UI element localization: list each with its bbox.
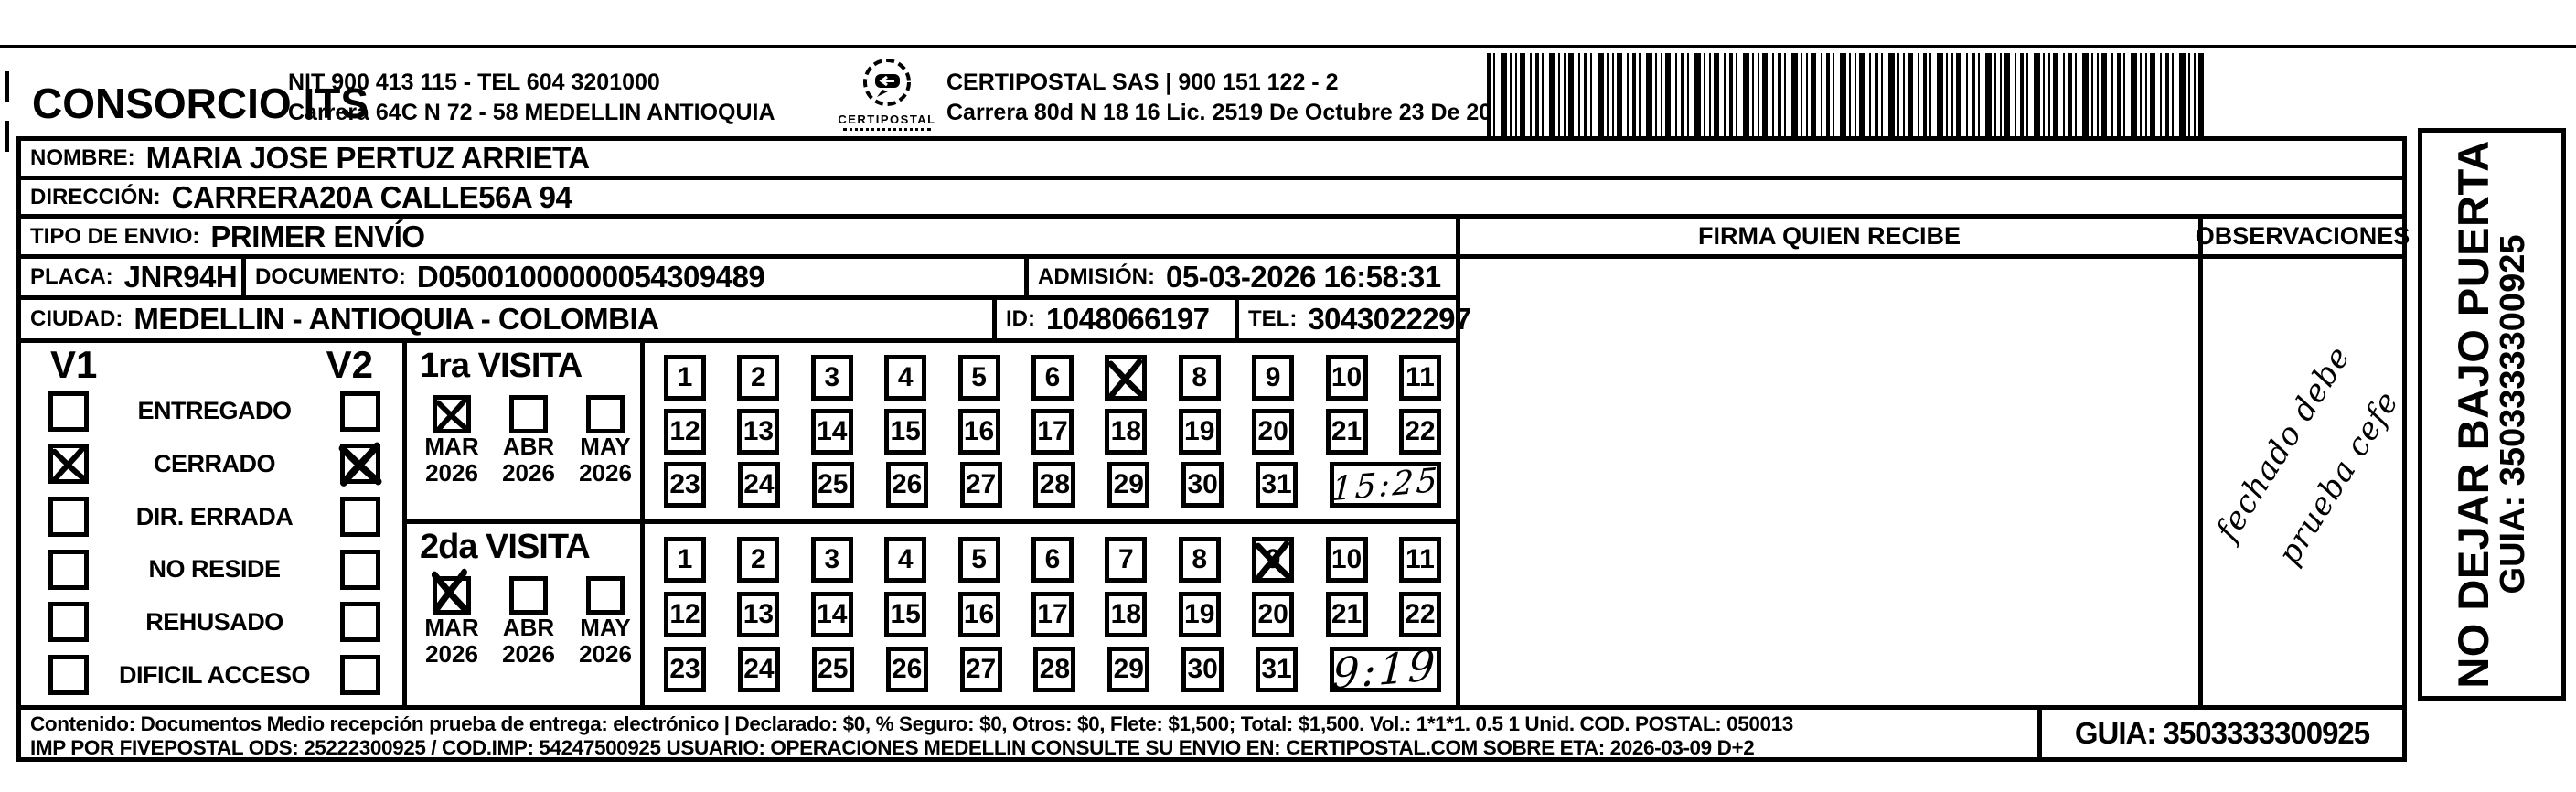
day-13[interactable]: 13: [737, 409, 779, 455]
day-number: 17: [1037, 416, 1067, 447]
visit-months: 2da VISITAMAR2026ABR2026MAY2026: [407, 524, 645, 705]
ciudad-value: MEDELLIN - ANTIOQUIA - COLOMBIA: [134, 302, 658, 337]
day-5[interactable]: 5: [958, 537, 1000, 583]
v1-checkbox-1[interactable]: [48, 444, 89, 484]
month-option-abr: ABR2026: [497, 395, 561, 487]
month-label: MAR: [424, 433, 478, 460]
day-number: 30: [1187, 654, 1217, 685]
handwritten-x-mark: [335, 438, 386, 489]
day-14[interactable]: 14: [811, 592, 853, 637]
logo-wordmark: CERTIPOSTAL: [830, 112, 944, 126]
status-label: REHUSADO: [89, 608, 340, 637]
day-19[interactable]: 19: [1179, 409, 1221, 455]
day-number: 2: [751, 362, 766, 393]
day-20[interactable]: 20: [1252, 592, 1294, 637]
day-number: 23: [669, 654, 700, 685]
day-22[interactable]: 22: [1399, 592, 1441, 637]
day-number: 28: [1040, 469, 1070, 500]
v1-checkbox-4[interactable]: [48, 602, 89, 642]
month-year: 2026: [579, 641, 632, 668]
day-3[interactable]: 3: [811, 537, 853, 583]
form-table: NOMBRE: MARIA JOSE PERTUZ ARRIETA DIRECC…: [16, 136, 2407, 762]
day-23[interactable]: 23: [664, 647, 706, 692]
day-25[interactable]: 25: [812, 647, 854, 692]
footer-contenido-line: Contenido: Documentos Medio recepción pr…: [30, 712, 2037, 736]
day-19[interactable]: 19: [1179, 592, 1221, 637]
direccion-row: DIRECCIÓN: CARRERA20A CALLE56A 94: [21, 180, 2402, 219]
id-value: 1048066197: [1046, 302, 1210, 337]
day-row: 1213141516171819202122: [664, 409, 1441, 455]
tipo-envio-row: TIPO DE ENVIO: PRIMER ENVÍO: [21, 219, 1460, 259]
day-number: 19: [1184, 416, 1214, 447]
tipo-envio-label: TIPO DE ENVIO:: [30, 224, 199, 250]
v1-checkbox-3[interactable]: [48, 550, 89, 590]
admision-value: 05-03-2026 16:58:31: [1166, 260, 1441, 294]
nombre-row: NOMBRE: MARIA JOSE PERTUZ ARRIETA: [21, 141, 2402, 180]
v1-column-header: V1: [50, 343, 97, 387]
day-10[interactable]: 10: [1326, 537, 1368, 583]
rotated-sidebar-text: NO DEJAR BAJO PUERTA GUIA: 3503333300925: [2423, 133, 2560, 696]
day-number: 4: [898, 544, 914, 575]
delivery-status-panel: V1 V2 ENTREGADOCERRADODIR. ERRADANO RESI…: [21, 343, 407, 705]
day-number: 9: [1266, 362, 1281, 393]
rotated-sidebar: NO DEJAR BAJO PUERTA GUIA: 3503333300925: [2418, 128, 2566, 701]
visit-title: 1ra VISITA: [407, 343, 640, 386]
day-number: 25: [818, 654, 848, 685]
day-row: 1234567891011: [664, 537, 1441, 583]
v2-checkbox-0[interactable]: [340, 391, 380, 432]
day-22[interactable]: 22: [1399, 409, 1441, 455]
day-number: 15: [890, 599, 920, 630]
day-number: 20: [1257, 599, 1288, 630]
documento-cell: DOCUMENTO: D05001000000054309489: [246, 259, 1029, 300]
visit-title: 2da VISITA: [407, 524, 640, 567]
day-number: 27: [966, 469, 996, 500]
day-number: 15: [890, 416, 920, 447]
day-12[interactable]: 12: [664, 409, 706, 455]
id-cell: ID: 1048066197: [997, 300, 1239, 343]
day-number: 10: [1331, 362, 1362, 393]
footer-guia-cell: GUIA: 3503333300925: [2042, 705, 2402, 757]
day-number: 11: [1406, 362, 1435, 393]
day-10[interactable]: 10: [1326, 355, 1368, 401]
day-number: 8: [1192, 544, 1207, 575]
month-checkbox-abr[interactable]: [509, 576, 548, 615]
tel-cell: TEL: 3043022297: [1239, 300, 1460, 343]
day-18[interactable]: 18: [1105, 409, 1147, 455]
day-number: 24: [743, 654, 774, 685]
id-label: ID:: [1006, 306, 1035, 332]
day-number: 22: [1405, 599, 1435, 630]
day-16[interactable]: 16: [958, 592, 1000, 637]
day-23[interactable]: 23: [664, 462, 706, 508]
day-number: 14: [817, 599, 847, 630]
direccion-label: DIRECCIÓN:: [30, 185, 161, 210]
observaciones-header: OBSERVACIONES: [2203, 219, 2402, 259]
day-number: 2: [751, 544, 766, 575]
status-label: CERRADO: [89, 450, 340, 478]
month-year: 2026: [425, 641, 478, 668]
visit-day-grid: 1234567891011121314151617181920212223242…: [649, 343, 1456, 519]
month-year: 2026: [502, 641, 555, 668]
day-number: 23: [669, 469, 700, 500]
month-label: ABR: [503, 615, 554, 641]
day-2[interactable]: 2: [737, 355, 779, 401]
status-label: ENTREGADO: [89, 397, 340, 425]
day-number: 31: [1261, 654, 1291, 685]
ciudad-cell: CIUDAD: MEDELLIN - ANTIOQUIA - COLOMBIA: [21, 300, 997, 343]
certipostal-contact-block: CERTIPOSTAL SAS | 900 151 122 - 2 Carrer…: [946, 68, 1517, 128]
visit-day-grid: 1234567891011121314151617181920212223242…: [649, 524, 1456, 705]
day-4[interactable]: 4: [884, 355, 926, 401]
month-checkboxes: MAR2026ABR2026MAY2026: [407, 576, 640, 668]
company-nit-line: NIT 900 413 115 - TEL 604 3201000: [288, 68, 775, 98]
nombre-label: NOMBRE:: [30, 145, 135, 171]
day-number: 13: [743, 416, 774, 447]
day-number: 5: [971, 362, 987, 393]
day-number: 12: [669, 599, 700, 630]
v1-checkbox-5[interactable]: [48, 655, 89, 695]
admision-cell: ADMISIÓN: 05-03-2026 16:58:31: [1029, 259, 1460, 300]
visit-panel-1: 1ra VISITAMAR2026ABR2026MAY2026123456789…: [407, 343, 1456, 524]
day-28[interactable]: 28: [1033, 462, 1075, 508]
day-27[interactable]: 27: [960, 462, 1002, 508]
v2-column-header: V2: [326, 343, 373, 387]
day-number: 3: [824, 544, 839, 575]
month-year: 2026: [502, 460, 555, 487]
day-18[interactable]: 18: [1105, 592, 1147, 637]
day-27[interactable]: 27: [960, 647, 1002, 692]
day-14[interactable]: 14: [811, 409, 853, 455]
visit-months: 1ra VISITAMAR2026ABR2026MAY2026: [407, 343, 645, 519]
placa-cell: PLACA: JNR94H: [21, 259, 246, 300]
status-row: NO RESIDE: [21, 550, 402, 590]
day-5[interactable]: 5: [958, 355, 1000, 401]
day-20[interactable]: 20: [1252, 409, 1294, 455]
day-2[interactable]: 2: [737, 537, 779, 583]
day-11[interactable]: 11: [1399, 537, 1441, 583]
firma-signature-area[interactable]: [1460, 263, 2198, 705]
day-number: 26: [892, 654, 922, 685]
day-number: 1: [678, 362, 693, 393]
placa-value: JNR94H: [124, 260, 238, 294]
day-1[interactable]: 1: [664, 537, 706, 583]
day-number: 3: [824, 362, 839, 393]
firma-header: FIRMA QUIEN RECIBE: [1460, 219, 2198, 259]
day-15[interactable]: 15: [884, 409, 926, 455]
month-label: MAY: [580, 615, 630, 641]
no-dejar-bajo-puerta-warning: NO DEJAR BAJO PUERTA: [2452, 140, 2496, 688]
day-number: 26: [892, 469, 922, 500]
status-row: REHUSADO: [21, 602, 402, 642]
handwritten-time: 9:19: [1331, 640, 1439, 700]
v2-checkbox-1[interactable]: [340, 444, 380, 484]
month-checkbox-may[interactable]: [586, 395, 625, 433]
certipostal-sas-line: CERTIPOSTAL SAS | 900 151 122 - 2: [946, 68, 1517, 98]
month-label: MAR: [424, 615, 478, 641]
day-number: 27: [966, 654, 996, 685]
day-number: 14: [817, 416, 847, 447]
tel-value: 3043022297: [1308, 302, 1471, 337]
day-number: 30: [1187, 469, 1217, 500]
scan-artifact: [5, 71, 9, 102]
day-number: 8: [1192, 362, 1207, 393]
day-24[interactable]: 24: [738, 647, 780, 692]
footer-content-cell: Contenido: Documentos Medio recepción pr…: [21, 705, 2042, 757]
day-number: 24: [743, 469, 774, 500]
day-row: 23242526272829303115:25: [664, 462, 1441, 508]
status-row: DIFICIL ACCESO: [21, 655, 402, 695]
day-25[interactable]: 25: [812, 462, 854, 508]
day-8[interactable]: 8: [1179, 537, 1221, 583]
handwritten-x-mark: [1105, 355, 1147, 401]
day-number: 5: [971, 544, 987, 575]
firma-column: FIRMA QUIEN RECIBE: [1460, 219, 2203, 705]
day-7[interactable]: 7: [1105, 537, 1147, 583]
day-21[interactable]: 21: [1326, 409, 1368, 455]
company-address-line: Carrera 64C N 72 - 58 MEDELLIN ANTIOQUIA: [288, 98, 775, 128]
admision-label: ADMISIÓN:: [1038, 264, 1155, 290]
day-number: 10: [1331, 544, 1362, 575]
day-row: 2324252627282930319:19: [664, 647, 1441, 692]
day-21[interactable]: 21: [1326, 592, 1368, 637]
tel-label: TEL:: [1248, 306, 1297, 332]
month-label: ABR: [503, 433, 554, 460]
documento-value: D05001000000054309489: [417, 260, 764, 294]
day-number: 29: [1114, 654, 1144, 685]
day-number: 18: [1111, 416, 1141, 447]
day-number: 22: [1405, 416, 1435, 447]
day-31[interactable]: 31: [1256, 462, 1298, 508]
day-11[interactable]: 11: [1399, 355, 1441, 401]
delivery-receipt-form: CONSORCIO ITS NIT 900 413 115 - TEL 604 …: [0, 0, 2576, 792]
day-number: 13: [743, 599, 774, 630]
v2-checkbox-3[interactable]: [340, 550, 380, 590]
day-number: 21: [1331, 599, 1362, 630]
certipostal-license-line: Carrera 80d N 18 16 Lic. 2519 De Octubre…: [946, 98, 1517, 128]
day-number: 16: [964, 599, 994, 630]
day-1[interactable]: 1: [664, 355, 706, 401]
day-17[interactable]: 17: [1031, 409, 1074, 455]
day-17[interactable]: 17: [1031, 592, 1074, 637]
month-checkbox-abr[interactable]: [509, 395, 548, 433]
day-8[interactable]: 8: [1179, 355, 1221, 401]
day-number: 9: [1266, 544, 1281, 575]
day-24[interactable]: 24: [738, 462, 780, 508]
day-15[interactable]: 15: [884, 592, 926, 637]
v2-checkbox-4[interactable]: [340, 602, 380, 642]
day-number: 11: [1406, 544, 1435, 575]
day-6[interactable]: 6: [1031, 537, 1074, 583]
day-number: 17: [1037, 599, 1067, 630]
day-row: 1213141516171819202122: [664, 592, 1441, 637]
ciudad-label: CIUDAD:: [30, 306, 123, 332]
placa-label: PLACA:: [30, 264, 113, 290]
day-26[interactable]: 26: [886, 462, 928, 508]
certipostal-logo-icon: [830, 57, 944, 112]
visit-panel-2: 2da VISITAMAR2026ABR2026MAY2026123456789…: [407, 524, 1456, 705]
month-option-may: MAY2026: [573, 395, 637, 487]
day-number: 4: [898, 362, 914, 393]
barcode-image: [1487, 53, 2206, 137]
day-number: 18: [1111, 599, 1141, 630]
v1-checkbox-0[interactable]: [48, 391, 89, 432]
visits-panel: 1ra VISITAMAR2026ABR2026MAY2026123456789…: [407, 343, 1460, 705]
top-border-line: [0, 45, 2576, 48]
nombre-value: MARIA JOSE PERTUZ ARRIETA: [146, 141, 590, 176]
day-26[interactable]: 26: [886, 647, 928, 692]
status-row: ENTREGADO: [21, 391, 402, 432]
month-checkbox-may[interactable]: [586, 576, 625, 615]
v2-checkbox-2[interactable]: [340, 497, 380, 537]
month-option-may: MAY2026: [573, 576, 637, 668]
direccion-value: CARRERA20A CALLE56A 94: [172, 180, 572, 215]
day-row: 1234567891011: [664, 355, 1441, 401]
certipostal-logo: CERTIPOSTAL: [830, 57, 944, 131]
status-label: NO RESIDE: [89, 555, 340, 583]
handwritten-x-mark: [48, 444, 89, 484]
day-number: 25: [818, 469, 848, 500]
day-13[interactable]: 13: [737, 592, 779, 637]
sidebar-guia-number: GUIA: 3503333300925: [2495, 235, 2532, 594]
day-30[interactable]: 30: [1181, 647, 1224, 692]
month-option-mar: MAR2026: [420, 576, 484, 668]
day-number: 19: [1184, 599, 1214, 630]
month-option-abr: ABR2026: [497, 576, 561, 668]
status-row: CERRADO: [21, 444, 402, 484]
day-number: 29: [1114, 469, 1144, 500]
month-checkbox-mar[interactable]: [433, 395, 471, 433]
status-label: DIR. ERRADA: [89, 503, 340, 531]
day-9[interactable]: 9: [1252, 537, 1294, 583]
tipo-envio-value: PRIMER ENVÍO: [210, 219, 424, 254]
month-year: 2026: [579, 460, 632, 487]
day-number: 20: [1257, 416, 1288, 447]
status-row: DIR. ERRADA: [21, 497, 402, 537]
day-29[interactable]: 29: [1107, 462, 1149, 508]
month-checkboxes: MAR2026ABR2026MAY2026: [407, 395, 640, 487]
handwritten-time: 15:25: [1331, 461, 1440, 508]
handwritten-x-mark: [428, 564, 472, 617]
footer-imp-line: IMP POR FIVEPOSTAL ODS: 25222300925 / CO…: [30, 736, 2037, 760]
day-number: 31: [1261, 469, 1291, 500]
day-29[interactable]: 29: [1107, 647, 1149, 692]
day-number: 28: [1040, 654, 1070, 685]
day-6[interactable]: 6: [1031, 355, 1074, 401]
company-contact-block: NIT 900 413 115 - TEL 604 3201000 Carrer…: [288, 68, 775, 128]
day-number: 21: [1331, 416, 1362, 447]
month-year: 2026: [425, 460, 478, 487]
month-label: MAY: [580, 433, 630, 460]
day-number: 7: [1118, 544, 1134, 575]
day-31[interactable]: 31: [1256, 647, 1298, 692]
status-rows: ENTREGADOCERRADODIR. ERRADANO RESIDEREHU…: [21, 385, 402, 701]
month-checkbox-mar[interactable]: [433, 576, 471, 615]
scan-artifact: [5, 121, 9, 152]
v1-checkbox-2[interactable]: [48, 497, 89, 537]
observaciones-column: OBSERVACIONES fechado debe prueba cefe: [2203, 219, 2402, 705]
day-7[interactable]: 7: [1105, 355, 1147, 401]
day-3[interactable]: 3: [811, 355, 853, 401]
status-label: DIFICIL ACCESO: [89, 661, 340, 690]
v2-checkbox-5[interactable]: [340, 655, 380, 695]
visit-time-box[interactable]: 9:19: [1330, 647, 1441, 692]
day-number: 16: [964, 416, 994, 447]
month-option-mar: MAR2026: [420, 395, 484, 487]
day-number: 6: [1045, 362, 1061, 393]
observaciones-handwriting: fechado debe prueba cefe: [2176, 299, 2447, 625]
day-9[interactable]: 9: [1252, 355, 1294, 401]
day-30[interactable]: 30: [1181, 462, 1224, 508]
handwritten-x-mark: [433, 395, 471, 433]
day-16[interactable]: 16: [958, 409, 1000, 455]
logo-tagline-dashes: [843, 128, 931, 131]
day-28[interactable]: 28: [1033, 647, 1075, 692]
day-number: 6: [1045, 544, 1061, 575]
day-number: 1: [678, 544, 693, 575]
visit-time-box[interactable]: 15:25: [1330, 462, 1441, 508]
day-12[interactable]: 12: [664, 592, 706, 637]
day-4[interactable]: 4: [884, 537, 926, 583]
day-number: 12: [669, 416, 700, 447]
documento-label: DOCUMENTO:: [255, 264, 406, 290]
